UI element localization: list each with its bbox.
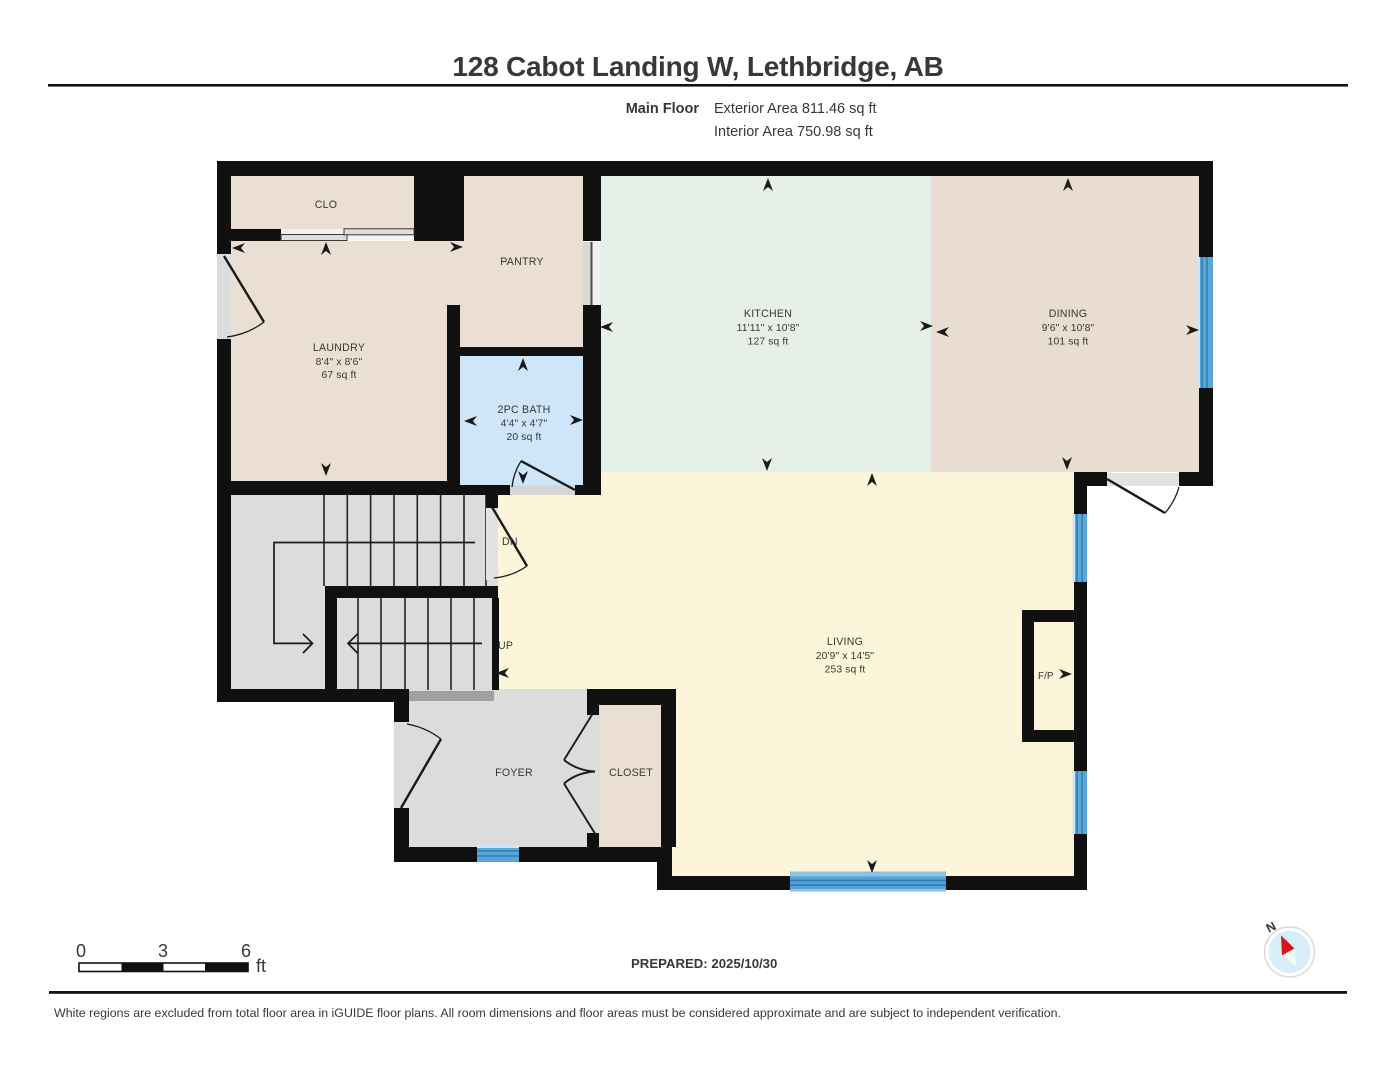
svg-text:UP: UP [498,640,513,652]
svg-text:20 sq ft: 20 sq ft [507,432,542,443]
svg-text:Exterior Area 811.46 sq ft: Exterior Area 811.46 sq ft [714,101,877,117]
svg-text:67 sq ft: 67 sq ft [322,370,357,381]
svg-text:101 sq ft: 101 sq ft [1048,337,1089,348]
svg-text:PREPARED: 2025/10/30: PREPARED: 2025/10/30 [631,956,777,971]
svg-text:0: 0 [76,941,86,961]
svg-text:Interior Area 750.98 sq ft: Interior Area 750.98 sq ft [714,124,873,140]
svg-text:127 sq ft: 127 sq ft [748,337,789,348]
svg-text:PANTRY: PANTRY [500,256,544,268]
svg-text:8'4" x 8'6": 8'4" x 8'6" [316,357,363,368]
svg-text:253 sq ft: 253 sq ft [825,665,866,676]
svg-text:128 Cabot Landing W, Lethbridg: 128 Cabot Landing W, Lethbridge, AB [452,51,943,82]
svg-text:DN: DN [502,536,518,548]
svg-text:ft: ft [256,956,266,976]
svg-text:4'4" x 4'7": 4'4" x 4'7" [501,419,548,430]
svg-text:DINING: DINING [1049,308,1088,320]
svg-text:2PC BATH: 2PC BATH [497,404,550,416]
svg-text:CLOSET: CLOSET [609,767,653,779]
svg-text:9'6" x 10'8": 9'6" x 10'8" [1042,323,1095,334]
svg-text:LAUNDRY: LAUNDRY [313,342,365,354]
svg-text:Main Floor: Main Floor [626,101,700,117]
svg-text:20'9" x 14'5": 20'9" x 14'5" [816,651,875,662]
svg-text:11'11" x 10'8": 11'11" x 10'8" [737,323,800,334]
svg-text:FOYER: FOYER [495,767,533,779]
svg-text:6: 6 [241,941,251,961]
svg-text:KITCHEN: KITCHEN [744,308,792,320]
svg-text:CLO: CLO [315,199,338,211]
svg-text:3: 3 [158,941,168,961]
svg-text:LIVING: LIVING [827,636,863,648]
svg-text:F/P: F/P [1038,671,1054,682]
svg-text:White regions are excluded fro: White regions are excluded from total fl… [54,1006,1061,1020]
